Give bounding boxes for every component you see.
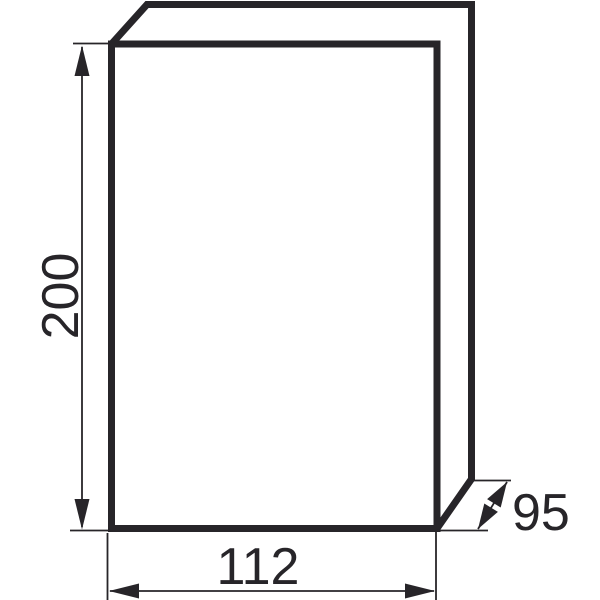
arrowhead-up-right-icon bbox=[487, 482, 507, 508]
technical-drawing-canvas: 200 112 95 bbox=[0, 0, 600, 600]
width-dimension: 112 bbox=[108, 532, 437, 600]
height-dimension-label: 200 bbox=[32, 253, 90, 340]
width-dimension-label: 112 bbox=[217, 538, 300, 596]
depth-dimension-label: 95 bbox=[512, 484, 570, 542]
arrowhead-left-icon bbox=[109, 584, 139, 599]
box-outline bbox=[112, 5, 472, 529]
arrowhead-right-icon bbox=[405, 584, 435, 599]
height-dimension: 200 bbox=[32, 44, 111, 531]
box-dimension-drawing: 200 112 95 bbox=[0, 0, 600, 600]
depth-dimension: 95 bbox=[437, 481, 570, 543]
box-front-face bbox=[112, 44, 438, 529]
arrowhead-up-icon bbox=[75, 46, 90, 77]
arrowhead-down-icon bbox=[75, 499, 90, 530]
arrowhead-down-left-icon bbox=[478, 504, 498, 530]
